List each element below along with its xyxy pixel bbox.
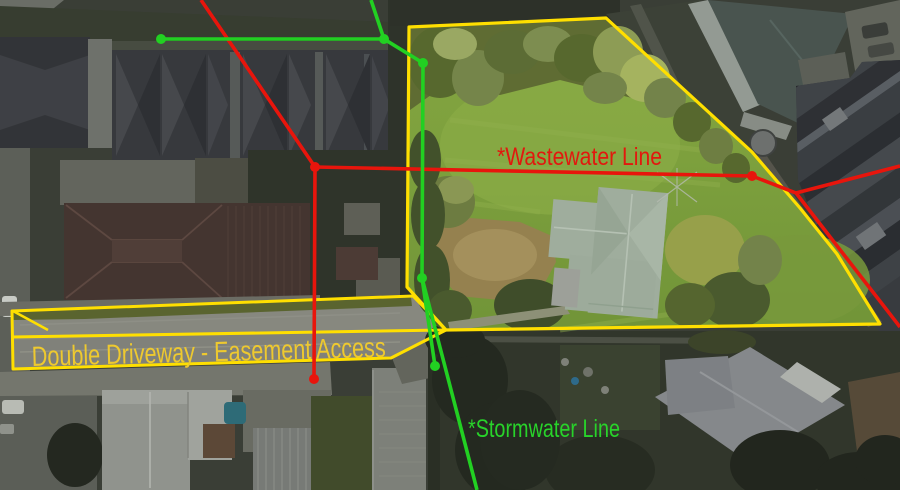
svg-text:*Wastewater Line: *Wastewater Line xyxy=(497,143,662,171)
svg-text:*Stormwater Line: *Stormwater Line xyxy=(468,415,620,443)
